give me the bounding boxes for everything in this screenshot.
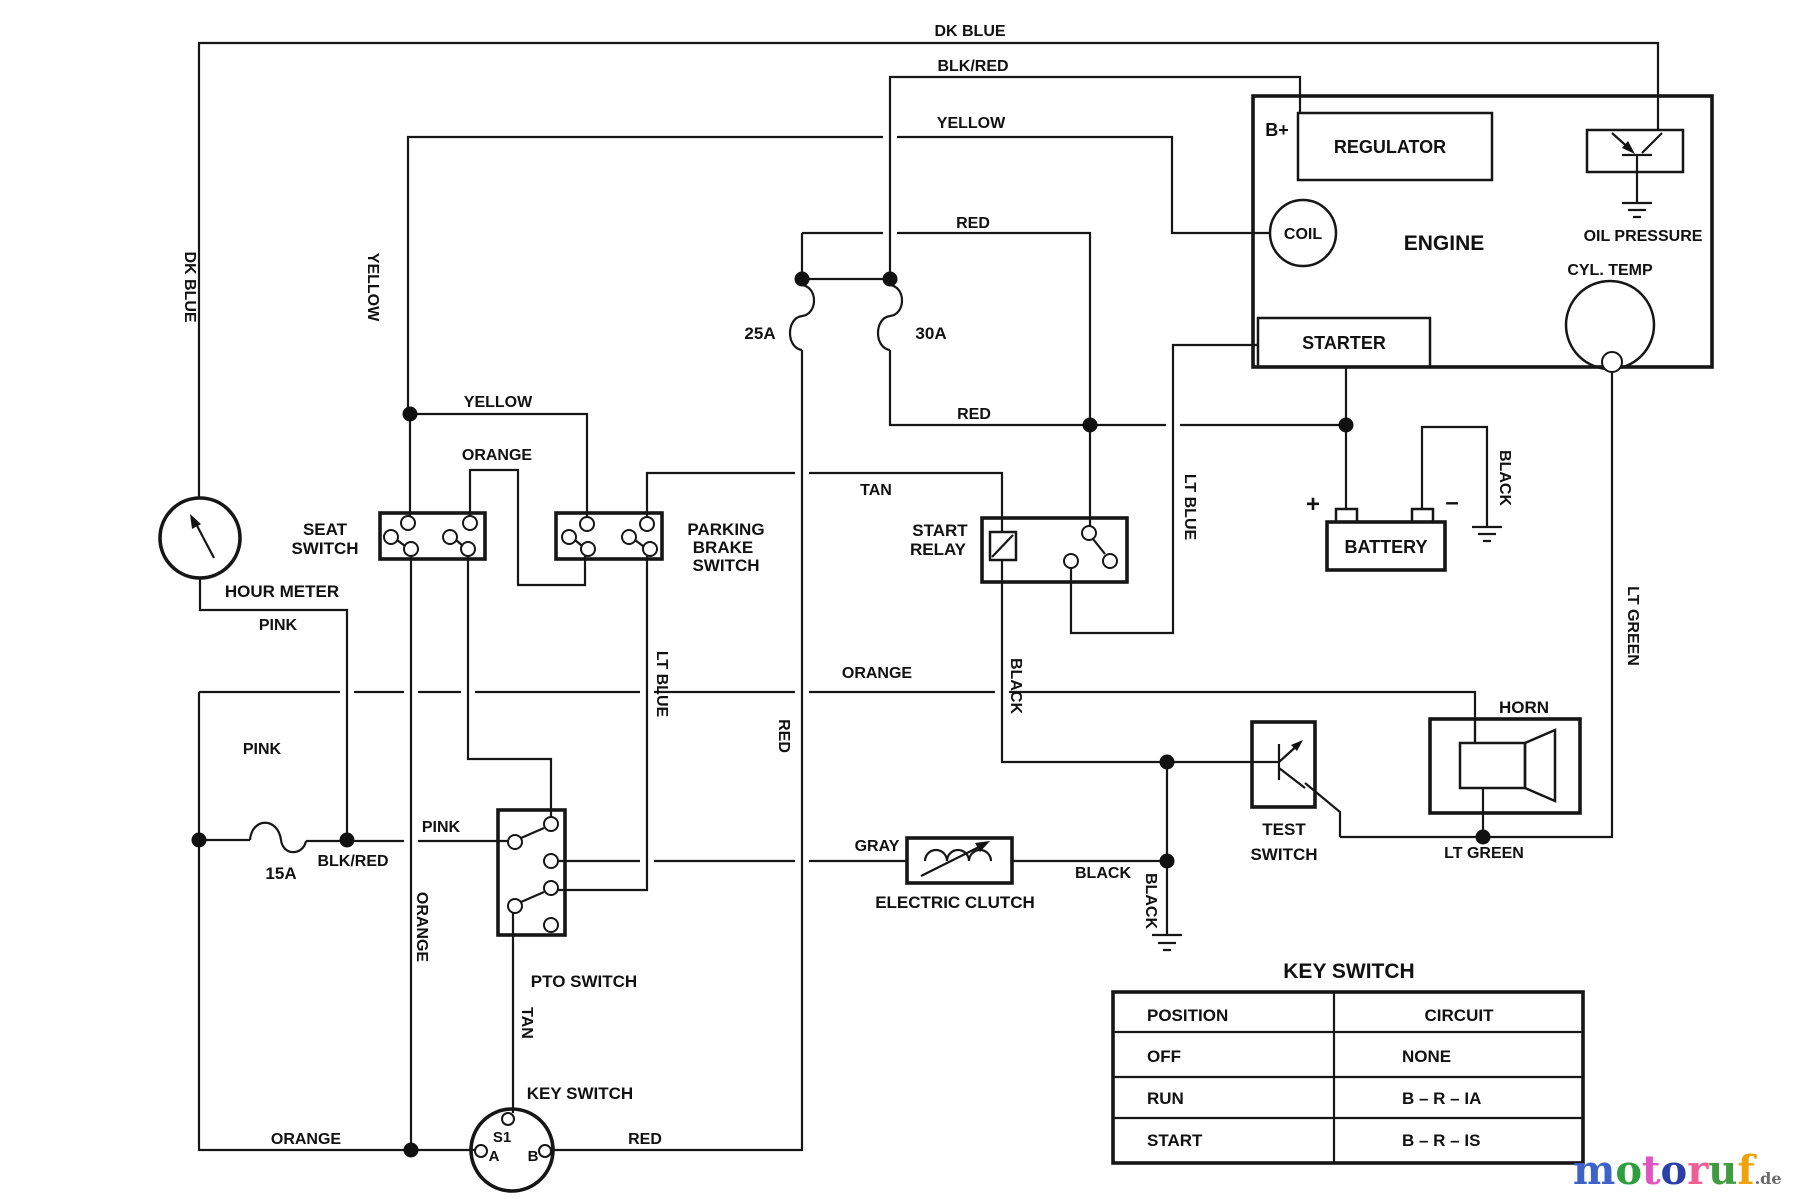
battery-plus-sign: + — [1306, 491, 1320, 518]
cyl-temp-label: CYL. TEMP — [1567, 262, 1653, 279]
wire-lt-blue-brake-pto — [558, 556, 647, 890]
wire-label-black-clutch: BLACK — [1075, 865, 1131, 882]
key-switch-label: KEY SWITCH — [527, 1084, 633, 1103]
battery-ground-icon — [1472, 527, 1502, 541]
wire-label-orange-long: ORANGE — [842, 665, 913, 682]
key-s1-label: S1 — [493, 1129, 511, 1146]
table-cell: NONE — [1402, 1047, 1451, 1066]
wire-label-black-battery: BLACK — [1496, 450, 1513, 506]
wire-lt-green — [1340, 372, 1612, 837]
table-cell: RUN — [1147, 1089, 1184, 1108]
wire-label-gray: GRAY — [855, 838, 900, 855]
test-switch-box — [1252, 722, 1315, 807]
junction — [883, 272, 898, 287]
wire-orange-seat-brake — [470, 470, 585, 585]
wire-label-dk-blue-vert: DK BLUE — [181, 251, 198, 322]
oil-pressure-label: OIL PRESSURE — [1584, 228, 1703, 245]
wire-blk-red — [890, 77, 1300, 279]
switch-contact — [461, 542, 475, 556]
hour-meter-label: HOUR METER — [225, 582, 339, 601]
switch-contact — [562, 530, 576, 544]
clutch-ground-icon — [1152, 935, 1182, 950]
wire-label-yellow-seat: YELLOW — [464, 394, 533, 411]
test-switch-label-1: TEST — [1262, 820, 1306, 839]
crossing-breaks — [340, 130, 1180, 868]
table-cell: START — [1147, 1131, 1203, 1150]
fuse-30a — [878, 279, 902, 350]
junction — [795, 272, 810, 287]
junction-dots — [192, 272, 1491, 1158]
table-header-circuit: CIRCUIT — [1425, 1006, 1495, 1025]
wire-label-red-bottom: RED — [628, 1131, 662, 1148]
key-b-label: B — [528, 1148, 539, 1165]
wire-red-to-battery — [890, 350, 1346, 509]
wire-label-orange-vert: ORANGE — [413, 892, 430, 963]
junction — [340, 833, 355, 848]
wire-label-red-mid: RED — [957, 406, 991, 423]
fuse-30a-label: 30A — [915, 324, 946, 343]
switch-arm — [521, 828, 544, 902]
horn-speaker-body — [1460, 743, 1525, 788]
junction — [1339, 418, 1354, 433]
table-cell: OFF — [1147, 1047, 1181, 1066]
horn-speaker-cone — [1525, 730, 1555, 801]
starter-label: STARTER — [1302, 333, 1386, 353]
wire-yellow-top — [408, 137, 1270, 414]
switch-contact — [384, 530, 398, 544]
wires-under — [199, 137, 1475, 861]
switch-contact — [580, 517, 594, 531]
switch-contact — [640, 517, 654, 531]
seat-switch-label-1: SEAT — [303, 520, 348, 539]
wire-label-black-relay: BLACK — [1007, 658, 1024, 714]
switch-contact — [581, 542, 595, 556]
wire-lt-blue-relay-starter — [1071, 345, 1258, 633]
relay-contact — [1082, 526, 1096, 540]
wire-label-tan-vert: TAN — [518, 1007, 535, 1039]
switch-contact — [544, 817, 558, 831]
fuse-25a-label: 25A — [744, 324, 775, 343]
start-relay-label-2: RELAY — [910, 540, 967, 559]
wire-label-dk-blue-top: DK BLUE — [934, 23, 1005, 40]
relay-coil-diagonal — [992, 535, 1013, 557]
motoruf-logo[interactable]: motoruf.de — [1573, 1147, 1782, 1194]
wire-label-red-vert: RED — [775, 719, 792, 753]
wire-label-blk-red-fuse: BLK/RED — [317, 853, 388, 870]
seat-switch-label-2: SWITCH — [291, 539, 358, 558]
junction — [1160, 755, 1175, 770]
wires-over — [199, 43, 1658, 1150]
wire-label-tan: TAN — [860, 482, 892, 499]
relay-contact — [1103, 554, 1117, 568]
relay-contact — [1064, 554, 1078, 568]
battery-terminal-plus — [1336, 509, 1357, 522]
b-plus-label: B+ — [1265, 120, 1289, 140]
key-terminal-a — [475, 1145, 487, 1157]
test-switch-label-2: SWITCH — [1250, 845, 1317, 864]
wire-label-red-top: RED — [956, 215, 990, 232]
fuse-25a — [790, 233, 814, 350]
parking-label-1: PARKING — [687, 520, 764, 539]
wire-yellow-seat-junction — [410, 414, 587, 517]
wire-orange-left — [199, 692, 475, 1150]
wire-label-blk-red-top: BLK/RED — [937, 58, 1008, 75]
wire-label-lt-blue-mid: LT BLUE — [653, 651, 670, 718]
horn-box — [1430, 719, 1580, 813]
junction — [1083, 418, 1098, 433]
switch-contact — [401, 516, 415, 530]
switch-contact — [544, 918, 558, 932]
switch-contact — [508, 899, 522, 913]
wire-label-orange-seat: ORANGE — [462, 447, 533, 464]
key-terminal-b — [539, 1145, 551, 1157]
cyl-temp-bulb — [1602, 352, 1622, 372]
battery-minus-sign: – — [1445, 489, 1458, 516]
wire-label-orange-bottom: ORANGE — [271, 1131, 342, 1148]
hour-meter-gauge — [160, 498, 240, 578]
wire-black-coil-test — [1002, 560, 1252, 762]
junction — [1160, 854, 1175, 869]
wire-test-switch-out — [1305, 783, 1340, 837]
wire-orange-main — [199, 692, 1475, 743]
junction — [192, 833, 207, 848]
fuse-15a-label: 15A — [265, 864, 296, 883]
wire-label-lt-blue-right: LT BLUE — [1181, 474, 1198, 541]
junction — [1476, 830, 1491, 845]
key-terminal-s1 — [502, 1113, 514, 1125]
coil-label: COIL — [1284, 226, 1322, 243]
start-relay-box — [982, 518, 1127, 582]
junction — [403, 407, 418, 422]
junction — [404, 1143, 419, 1158]
wire-dk-blue — [199, 43, 1658, 498]
wire-label-lt-green-horn: LT GREEN — [1444, 845, 1524, 862]
switch-contact — [508, 835, 522, 849]
parking-label-2: BRAKE — [693, 538, 753, 557]
wire-red-fuse-to-relay — [802, 233, 1090, 526]
components — [160, 96, 1712, 1191]
wire-label-yellow-vert: YELLOW — [364, 253, 381, 322]
wire-label-lt-green-vert: LT GREEN — [1624, 586, 1641, 666]
key-a-label: A — [489, 1148, 500, 1165]
switch-contact — [544, 881, 558, 895]
switch-contact — [404, 542, 418, 556]
regulator-label: REGULATOR — [1334, 137, 1446, 157]
wire-label-pink-1: PINK — [259, 617, 298, 634]
wire-label-pink-2: PINK — [243, 741, 282, 758]
horn-label: HORN — [1499, 698, 1549, 717]
wire-yellow-seat-pto — [468, 556, 551, 817]
pto-switch-label: PTO SWITCH — [531, 972, 637, 991]
switch-contact — [643, 542, 657, 556]
battery-label: BATTERY — [1345, 537, 1428, 557]
battery-terminal-minus — [1412, 509, 1433, 522]
oil-pressure-box — [1587, 130, 1683, 172]
start-relay-label-1: START — [912, 521, 968, 540]
wire-red-vertical — [551, 350, 802, 1150]
wire-label-black-ground: BLACK — [1142, 873, 1159, 929]
table-header-position: POSITION — [1147, 1006, 1228, 1025]
table-title: KEY SWITCH — [1283, 960, 1414, 983]
engine-label: ENGINE — [1404, 232, 1485, 255]
switch-contact — [622, 530, 636, 544]
wiring-diagram: DK BLUE BLK/RED YELLOW RED RED B+ REGULA… — [0, 0, 1800, 1199]
oil-pressure-symbol — [1612, 133, 1662, 203]
table-cell: B – R – IA — [1402, 1089, 1481, 1108]
switch-contact — [443, 530, 457, 544]
wire-label-pink-3: PINK — [422, 819, 461, 836]
hour-meter-needle-arrow — [190, 514, 201, 529]
relay-arm — [1093, 539, 1105, 554]
clutch-coil — [925, 850, 991, 861]
electric-clutch-label: ELECTRIC CLUTCH — [875, 893, 1035, 912]
parking-label-3: SWITCH — [692, 556, 759, 575]
oil-pressure-ground-icon — [1622, 203, 1652, 217]
table-cell: B – R – IS — [1402, 1131, 1480, 1150]
switch-contact — [463, 516, 477, 530]
switch-contact — [544, 854, 558, 868]
wire-label-yellow-top: YELLOW — [937, 115, 1006, 132]
